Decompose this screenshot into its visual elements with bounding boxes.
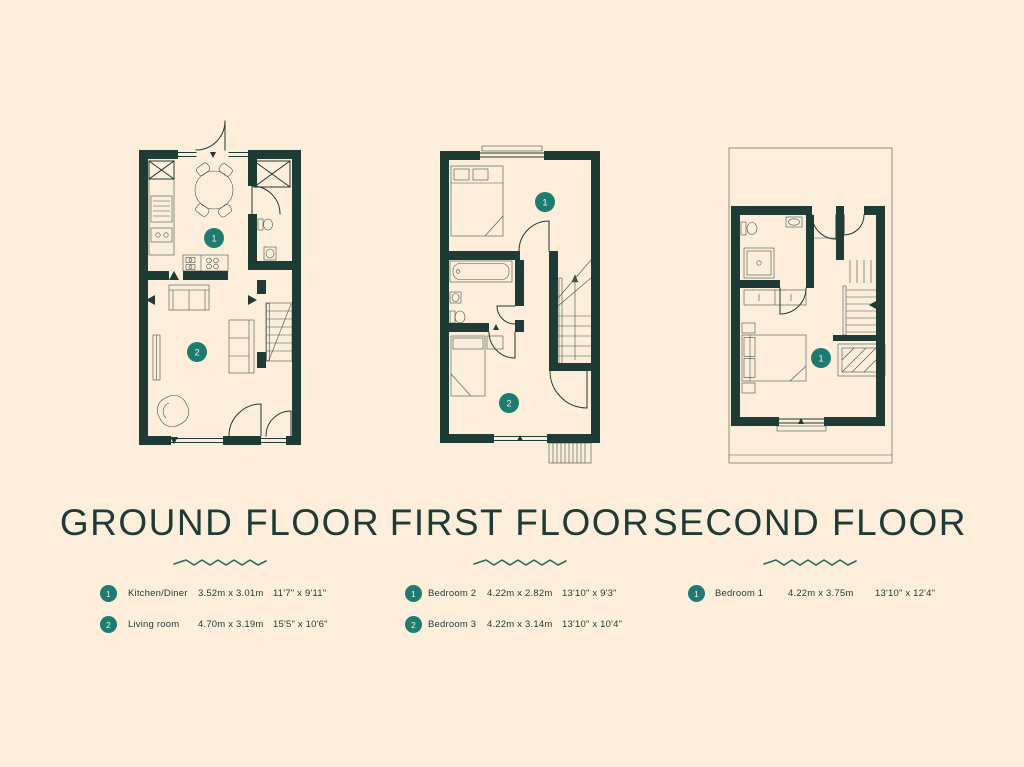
svg-text:2: 2 bbox=[506, 399, 511, 409]
wc-basin bbox=[264, 247, 276, 260]
room-badge: 1 bbox=[204, 228, 224, 248]
stairs bbox=[843, 260, 876, 335]
first-floor-drawing: 1 2 bbox=[440, 146, 600, 463]
shower-toilet bbox=[741, 222, 757, 235]
roof-outline bbox=[729, 148, 892, 463]
room-legend: 1 Bedroom 1 4.22m x 3.75m 13'10" x 12'4" bbox=[660, 585, 960, 616]
zigzag-divider bbox=[472, 557, 568, 567]
kitchen-hob-sink bbox=[183, 255, 228, 271]
room-size-imperial: 13'10" x 9'3" bbox=[562, 588, 617, 599]
entry-steps bbox=[549, 443, 591, 463]
sofa-right bbox=[229, 320, 254, 373]
first-floor-section: 1 2 FIRST FLOOR 1 Bedroom 2 4.22m x 2.82… bbox=[390, 108, 650, 647]
radiator bbox=[153, 335, 160, 380]
bathroom-basin bbox=[450, 292, 461, 303]
cupboard-top-right bbox=[254, 161, 290, 187]
room-size-imperial: 11'7" x 9'11" bbox=[273, 588, 326, 599]
room-badge: 1 bbox=[535, 192, 555, 212]
room-size-metric: 4.70m x 3.19m bbox=[198, 619, 273, 630]
room-size-metric: 3.52m x 3.01m bbox=[198, 588, 273, 599]
bed-double bbox=[742, 323, 806, 393]
sofa-two-seat bbox=[169, 285, 209, 310]
room-badge: 2 bbox=[187, 342, 207, 362]
room-size-imperial: 13'10" x 12'4" bbox=[875, 588, 935, 599]
ground-walls bbox=[139, 150, 301, 445]
room-size-metric: 4.22m x 2.82m bbox=[487, 588, 562, 599]
second-floor-plan: 1 bbox=[715, 108, 905, 468]
room-name: Kitchen/Diner bbox=[128, 588, 198, 599]
bed-double bbox=[451, 166, 503, 236]
armchair bbox=[153, 391, 194, 432]
zigzag-divider bbox=[762, 557, 858, 567]
bathroom-toilet bbox=[450, 311, 465, 323]
floor-title: FIRST FLOOR bbox=[390, 504, 650, 541]
bed-single bbox=[451, 336, 503, 396]
bathtub bbox=[450, 261, 512, 282]
room-number-badge: 2 bbox=[405, 616, 422, 633]
room-size-imperial: 15'5" x 10'6" bbox=[273, 619, 328, 630]
svg-text:1: 1 bbox=[542, 198, 547, 208]
room-legend: 1 Kitchen/Diner 3.52m x 3.01m 11'7" x 9'… bbox=[58, 585, 382, 647]
first-walls bbox=[440, 151, 600, 443]
second-floor-drawing: 1 bbox=[729, 148, 892, 463]
room-size-imperial: 13'10" x 10'4" bbox=[562, 619, 622, 630]
room-name: Bedroom 2 bbox=[428, 588, 487, 599]
room-name: Bedroom 3 bbox=[428, 619, 487, 630]
ground-windows bbox=[171, 153, 286, 443]
shower-tray bbox=[744, 248, 774, 278]
svg-text:2: 2 bbox=[194, 348, 199, 358]
legend-row: 1 Bedroom 2 4.22m x 2.82m 13'10" x 9'3" bbox=[390, 585, 650, 602]
floor-title: GROUND FLOOR bbox=[60, 504, 380, 541]
dining-table bbox=[194, 162, 233, 218]
room-size-metric: 4.22m x 3.14m bbox=[487, 619, 562, 630]
svg-text:1: 1 bbox=[211, 234, 216, 244]
room-number-badge: 1 bbox=[100, 585, 117, 602]
kitchen-counter bbox=[149, 179, 174, 255]
room-number-badge: 1 bbox=[688, 585, 705, 602]
wc-toilet bbox=[258, 219, 273, 230]
legend-row: 1 Kitchen/Diner 3.52m x 3.01m 11'7" x 9'… bbox=[58, 585, 382, 602]
wardrobe bbox=[744, 290, 806, 305]
second-threshold-markers bbox=[798, 301, 876, 424]
svg-text:1: 1 bbox=[818, 354, 823, 364]
ground-floor-plan: 1 2 bbox=[125, 108, 315, 468]
ground-floor-drawing: 1 2 bbox=[139, 121, 301, 445]
room-badge: 1 bbox=[811, 348, 831, 368]
room-legend: 1 Bedroom 2 4.22m x 2.82m 13'10" x 9'3" … bbox=[390, 585, 650, 647]
room-name: Bedroom 1 bbox=[715, 588, 788, 599]
room-name: Living room bbox=[128, 619, 198, 630]
wardrobe-top-left bbox=[149, 161, 174, 179]
stairs bbox=[266, 303, 292, 361]
shower-basin bbox=[786, 217, 802, 227]
legend-row: 1 Bedroom 1 4.22m x 3.75m 13'10" x 12'4" bbox=[660, 585, 960, 602]
room-size-metric: 4.22m x 3.75m bbox=[788, 588, 875, 599]
room-number-badge: 1 bbox=[405, 585, 422, 602]
legend-row: 2 Living room 4.70m x 3.19m 15'5" x 10'6… bbox=[58, 616, 382, 633]
room-badge: 2 bbox=[499, 393, 519, 413]
first-doors bbox=[489, 221, 587, 408]
floorplan-page: { "palette": { "bg": "#fdeedc", "wall": … bbox=[0, 0, 1024, 767]
second-doors bbox=[780, 215, 864, 314]
ground-floor-section: 1 2 GROUND FLOOR 1 Kitchen/Diner 3.52m x… bbox=[58, 108, 382, 647]
floor-title: SECOND FLOOR bbox=[653, 504, 967, 541]
first-floor-plan: 1 2 bbox=[425, 108, 615, 468]
room-number-badge: 2 bbox=[100, 616, 117, 633]
second-floor-section: 1 SECOND FLOOR 1 Bedroom 1 4.22m x 3.75m… bbox=[660, 108, 960, 616]
stairs bbox=[558, 260, 591, 366]
zigzag-divider bbox=[172, 557, 268, 567]
legend-row: 2 Bedroom 3 4.22m x 3.14m 13'10" x 10'4" bbox=[390, 616, 650, 633]
